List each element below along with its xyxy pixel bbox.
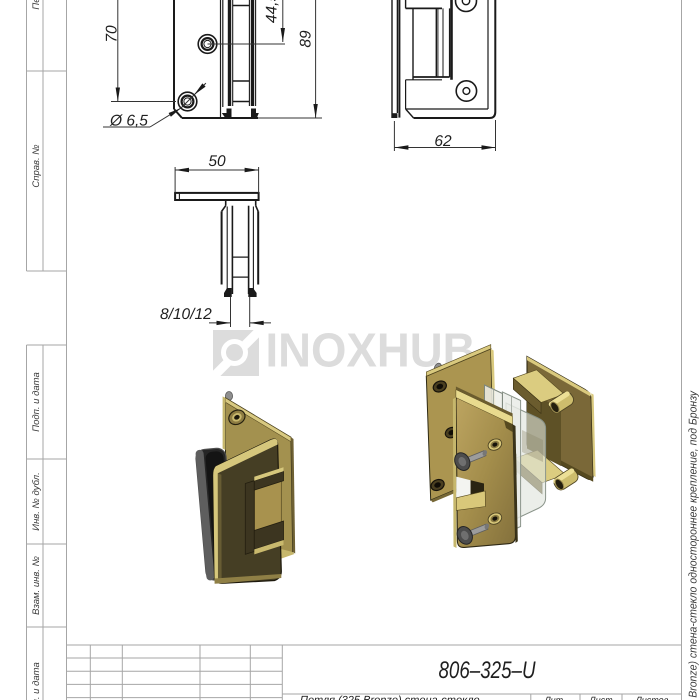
svg-text:Лист: Лист [588,695,613,700]
svg-text:Подп. и дата: Подп. и дата [31,372,42,431]
svg-text:Лит.: Лит. [543,695,565,700]
svg-text:70: 70 [104,25,121,43]
svg-text:Взам. инв. №: Взам. инв. № [31,556,42,615]
svg-text:Перв. примен.: Перв. примен. [31,0,42,10]
svg-text:44,5: 44,5 [264,0,281,23]
svg-text:Ø 6,5: Ø 6,5 [109,113,148,130]
svg-text:Подп. и дата: Подп. и дата [31,662,42,700]
svg-text:62: 62 [434,133,452,150]
svg-text:Петля (325 Bronze) стена-стекл: Петля (325 Bronze) стена-стекло [300,695,480,700]
svg-text:8/10/12: 8/10/12 [160,306,212,323]
svg-text:Справ. №: Справ. № [31,144,42,187]
svg-text:Петля (325 Bronze) стена-стекл: Петля (325 Bronze) стена-стекло одностор… [687,390,699,700]
svg-text:50: 50 [208,153,226,170]
svg-text:806–325–U: 806–325–U [439,657,537,684]
svg-text:Инв. № дубл.: Инв. № дубл. [31,472,42,530]
svg-text:89: 89 [298,30,315,48]
svg-text:Листов: Листов [635,695,669,700]
